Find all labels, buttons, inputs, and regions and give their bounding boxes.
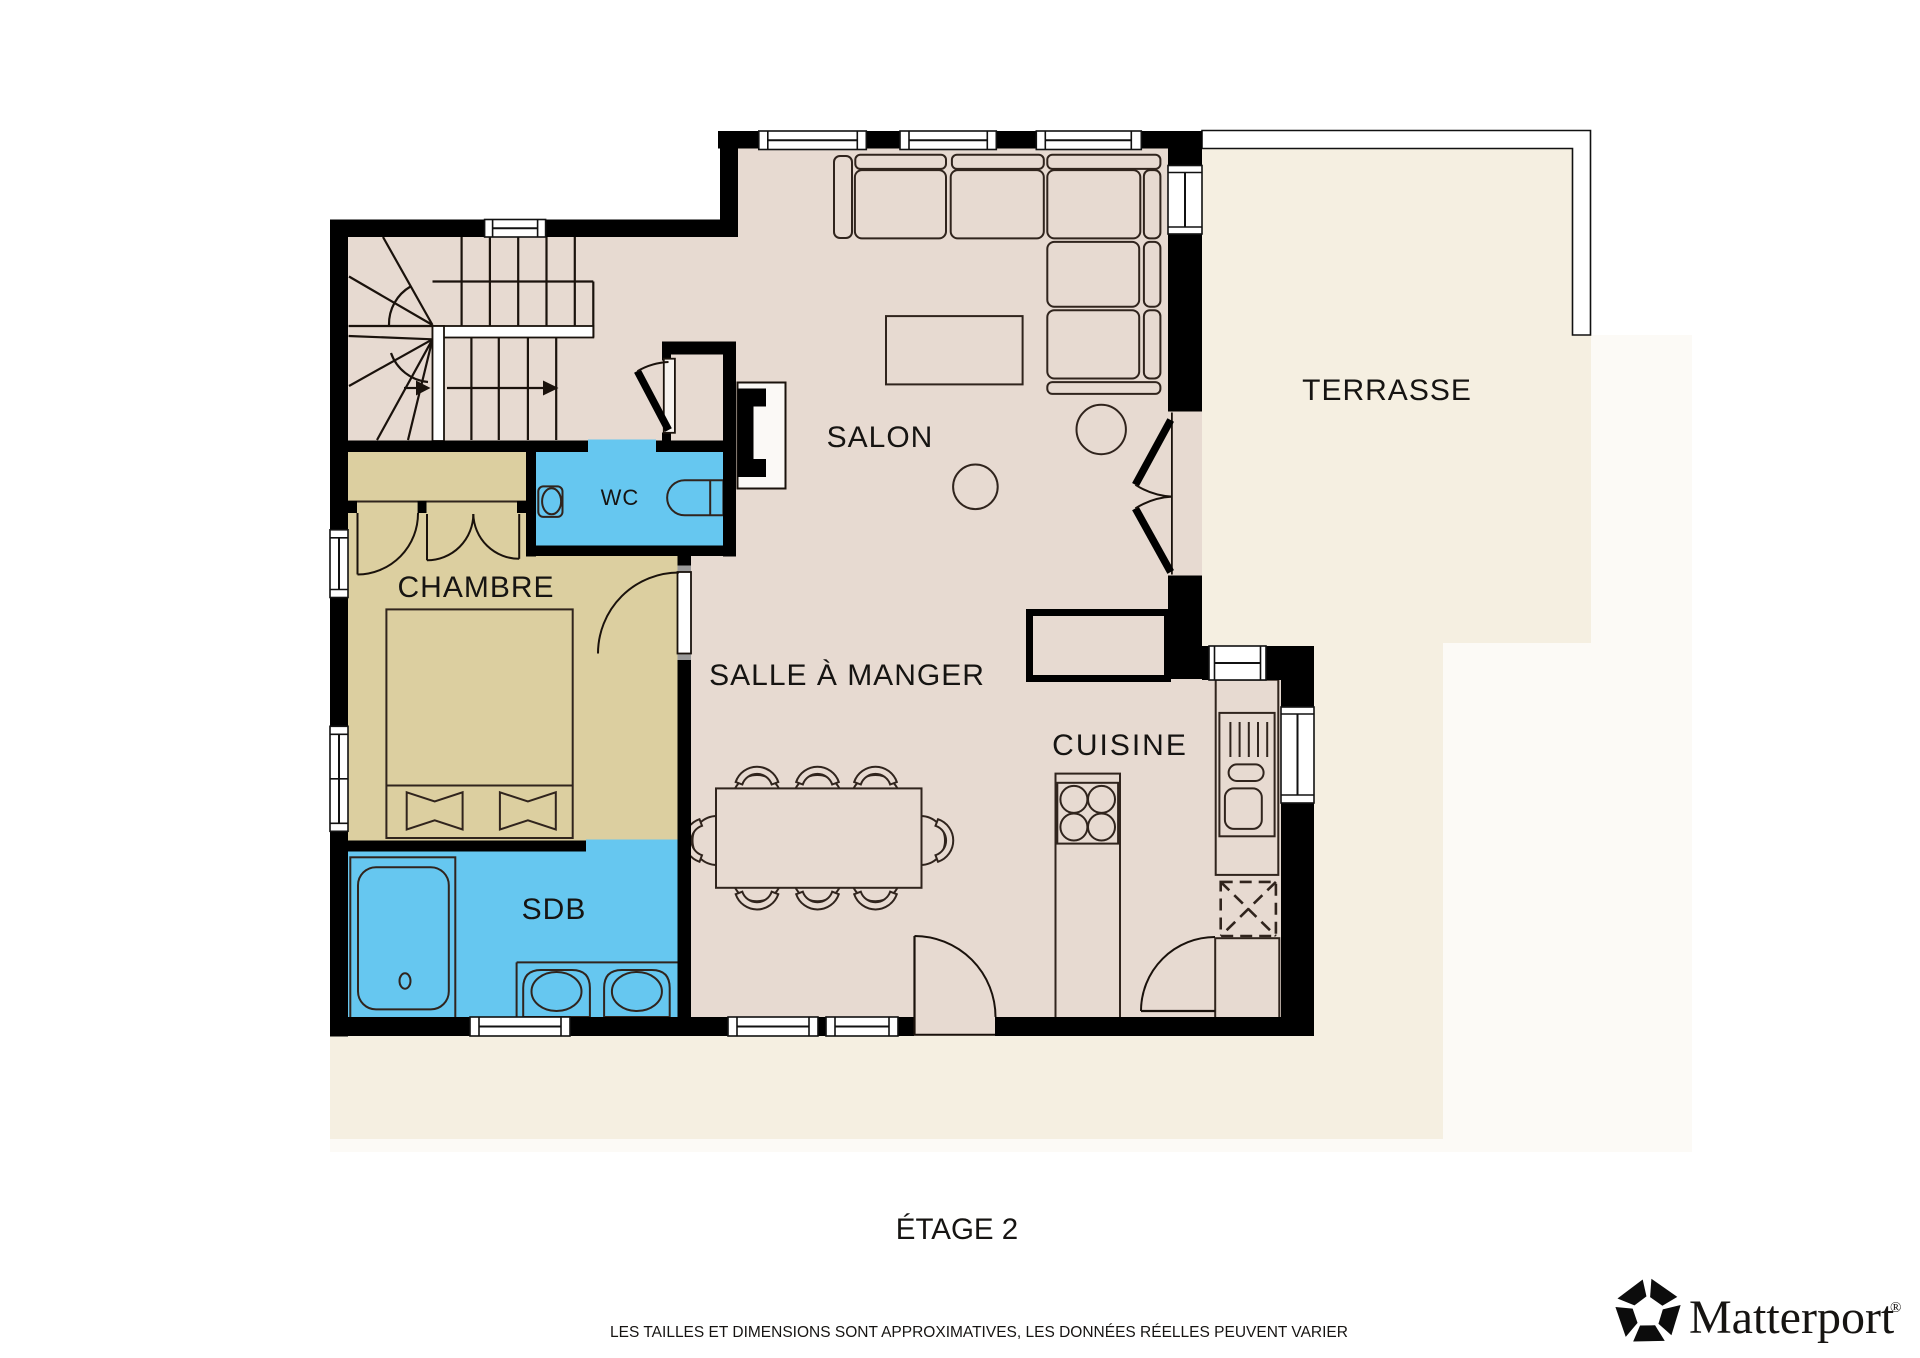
svg-text:®: ® [1890, 1300, 1901, 1316]
svg-text:LES TAILLES ET DIMENSIONS SONT: LES TAILLES ET DIMENSIONS SONT APPROXIMA… [610, 1324, 1348, 1341]
svg-text:WC: WC [601, 485, 640, 510]
svg-text:ÉTAGE 2: ÉTAGE 2 [896, 1213, 1018, 1246]
svg-text:SALON: SALON [827, 421, 934, 454]
svg-text:SDB: SDB [522, 893, 587, 926]
svg-text:Matterport: Matterport [1689, 1291, 1895, 1344]
svg-text:TERRASSE: TERRASSE [1302, 374, 1472, 407]
svg-text:SALLE À MANGER: SALLE À MANGER [709, 659, 985, 692]
svg-text:CUISINE: CUISINE [1052, 729, 1188, 762]
svg-text:CHAMBRE: CHAMBRE [397, 571, 554, 604]
